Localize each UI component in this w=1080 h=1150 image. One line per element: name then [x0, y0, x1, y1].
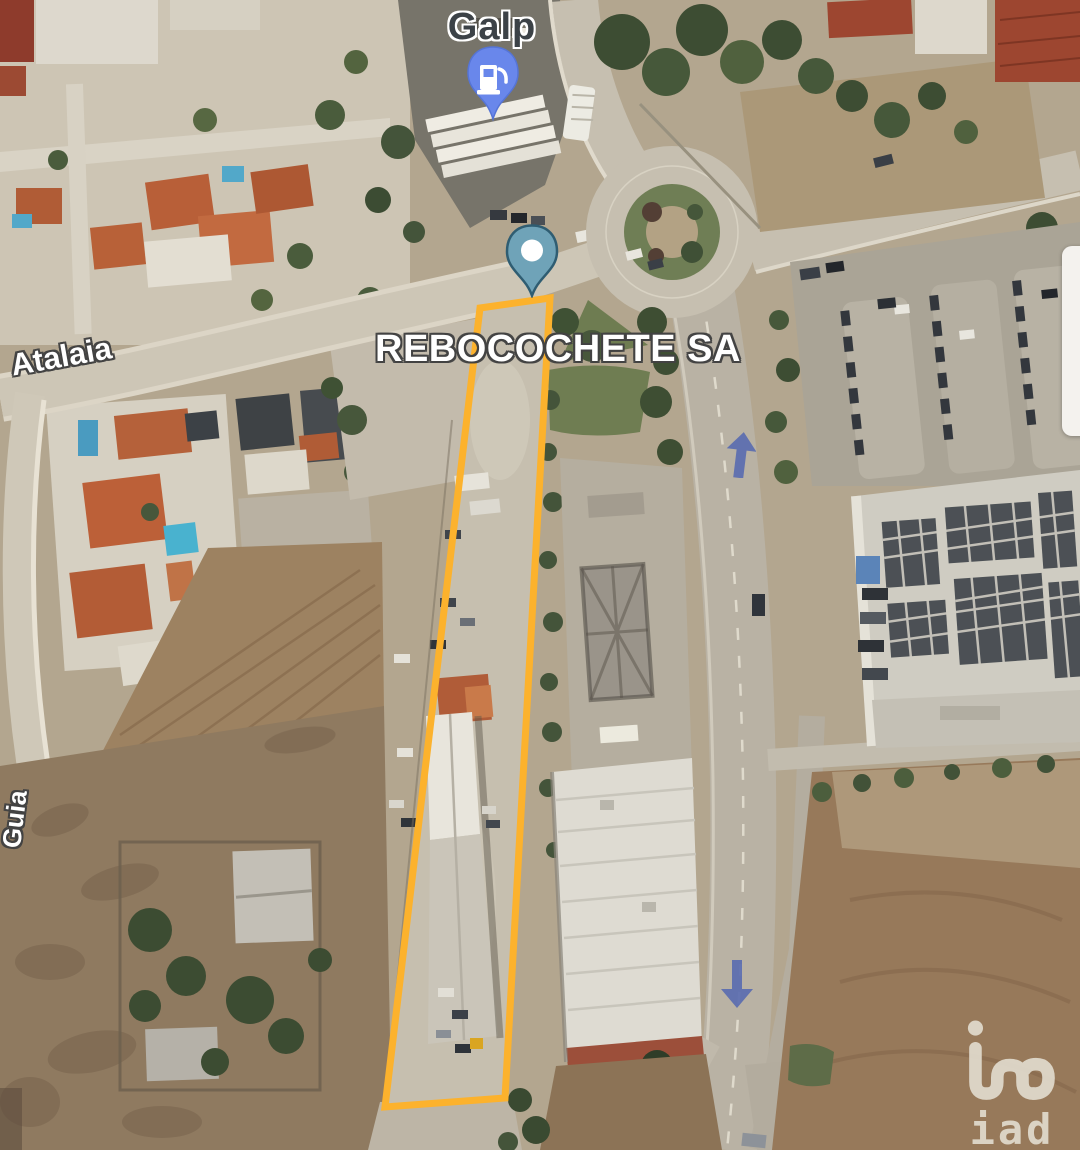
iad-wordmark: iad — [952, 1109, 1072, 1150]
industrial-building-solar — [856, 470, 1080, 748]
map-canvas[interactable]: Galp REBOCOCHETE SA Atalaia Guia iad — [0, 0, 1080, 1150]
galp-poi-label[interactable]: Galp — [437, 6, 547, 49]
residential-area-northwest — [0, 0, 410, 345]
property-name-label[interactable]: REBOCOCHETE SA — [375, 328, 697, 371]
iad-logo: iad — [952, 1018, 1072, 1150]
parking-lot-east — [765, 222, 1080, 488]
side-panel-edge[interactable] — [1062, 246, 1080, 436]
satellite-imagery — [0, 0, 1080, 1150]
iad-monogram-icon — [956, 1018, 1068, 1102]
